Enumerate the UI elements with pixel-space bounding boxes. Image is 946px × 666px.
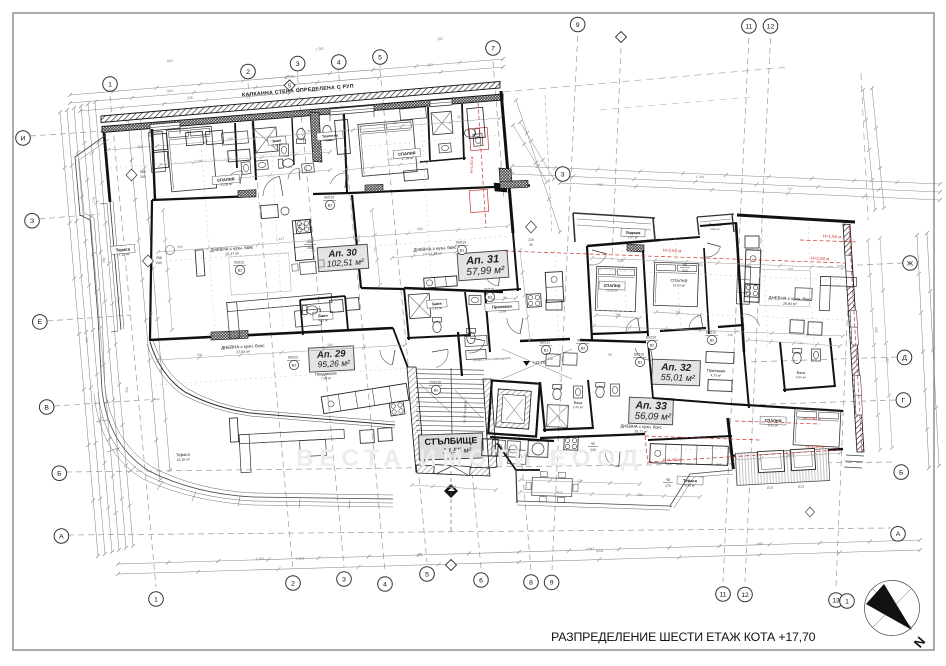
svg-text:1: 1 bbox=[108, 81, 112, 88]
svg-text:340: 340 bbox=[617, 259, 623, 263]
svg-text:148: 148 bbox=[373, 247, 377, 253]
svg-text:1: 1 bbox=[154, 596, 158, 603]
svg-text:210: 210 bbox=[682, 269, 688, 273]
svg-text:95,26 м²: 95,26 м² bbox=[317, 358, 351, 370]
svg-text:1 447: 1 447 bbox=[276, 237, 285, 242]
svg-text:1,92 м²: 1,92 м² bbox=[710, 227, 720, 231]
svg-text:360: 360 bbox=[125, 387, 129, 393]
svg-text:90/210: 90/210 bbox=[456, 241, 466, 245]
svg-text:А: А bbox=[896, 531, 901, 538]
svg-text:90: 90 bbox=[393, 121, 397, 125]
svg-text:905: 905 bbox=[874, 327, 878, 333]
svg-text:Л-П: Л-П bbox=[767, 486, 773, 490]
svg-text:4: 4 bbox=[383, 581, 387, 588]
svg-text:+17,70: +17,70 bbox=[533, 360, 547, 365]
svg-text:Г: Г bbox=[902, 397, 906, 404]
svg-text:Б: Б bbox=[899, 469, 904, 476]
svg-text:80/210: 80/210 bbox=[706, 331, 716, 335]
svg-text:1 592: 1 592 bbox=[316, 47, 325, 52]
svg-text:2: 2 bbox=[291, 580, 295, 587]
svg-text:З: З bbox=[30, 218, 34, 225]
svg-text:272: 272 bbox=[577, 479, 583, 483]
svg-text:338: 338 bbox=[187, 96, 193, 100]
svg-text:203: 203 bbox=[427, 63, 433, 67]
svg-text:В1: В1 bbox=[544, 349, 548, 353]
svg-text:В3: В3 bbox=[488, 296, 492, 300]
svg-text:11: 11 bbox=[745, 23, 752, 30]
svg-text:4,04 м²: 4,04 м² bbox=[796, 375, 806, 379]
svg-text:4: 4 bbox=[337, 59, 341, 66]
svg-text:592: 592 bbox=[102, 257, 106, 263]
svg-text:425: 425 bbox=[387, 157, 393, 161]
svg-text:Прихожая: Прихожая bbox=[707, 368, 726, 374]
svg-text:240: 240 bbox=[140, 175, 146, 179]
svg-text:385: 385 bbox=[615, 313, 621, 317]
svg-text:В2: В2 bbox=[650, 344, 654, 348]
svg-text:56,09 м²: 56,09 м² bbox=[635, 411, 672, 423]
svg-text:586: 586 bbox=[417, 553, 423, 557]
svg-text:1,98 м²: 1,98 м² bbox=[325, 138, 335, 143]
svg-text:13: 13 bbox=[832, 597, 840, 604]
svg-text:Б: Б bbox=[57, 471, 62, 478]
svg-text:Н=1,50 м: Н=1,50 м bbox=[663, 457, 681, 462]
svg-text:272: 272 bbox=[557, 491, 563, 495]
svg-text:90: 90 bbox=[503, 296, 507, 300]
svg-text:В2: В2 bbox=[238, 269, 242, 273]
svg-text:И: И bbox=[21, 135, 26, 142]
svg-text:90: 90 bbox=[357, 238, 361, 242]
svg-text:В2: В2 bbox=[710, 339, 714, 343]
svg-text:Н=2,60 м: Н=2,60 м bbox=[663, 248, 682, 254]
svg-text:680: 680 bbox=[757, 542, 763, 546]
svg-text:9: 9 bbox=[550, 580, 554, 587]
svg-text:4 847: 4 847 bbox=[586, 547, 595, 551]
svg-text:В1: В1 bbox=[638, 361, 642, 365]
svg-text:6: 6 bbox=[479, 577, 483, 584]
svg-text:90: 90 bbox=[683, 263, 687, 267]
svg-text:80/210: 80/210 bbox=[634, 353, 644, 357]
svg-text:455: 455 bbox=[885, 357, 889, 363]
svg-text:1 007: 1 007 bbox=[296, 557, 305, 561]
svg-text:27,84 м²: 27,84 м² bbox=[236, 349, 251, 354]
svg-text:586: 586 bbox=[637, 493, 643, 497]
svg-text:В2: В2 bbox=[581, 347, 585, 351]
svg-text:Н=1,50 м: Н=1,50 м bbox=[806, 444, 824, 449]
svg-text:219: 219 bbox=[528, 238, 534, 242]
svg-text:240: 240 bbox=[307, 246, 313, 250]
svg-text:90/210: 90/210 bbox=[234, 261, 244, 265]
svg-text:26,84 м²: 26,84 м² bbox=[783, 302, 798, 307]
svg-text:3,61 м²: 3,61 м² bbox=[432, 306, 442, 311]
svg-text:9: 9 bbox=[576, 22, 580, 29]
svg-text:2: 2 bbox=[246, 69, 250, 76]
svg-text:178: 178 bbox=[92, 197, 96, 203]
svg-text:780: 780 bbox=[787, 453, 793, 457]
svg-text:148: 148 bbox=[727, 333, 733, 337]
svg-text:90/210: 90/210 bbox=[288, 356, 298, 360]
svg-text:203: 203 bbox=[437, 37, 443, 41]
svg-text:Л-П: Л-П bbox=[798, 485, 804, 489]
svg-text:2,17 м²: 2,17 м² bbox=[628, 235, 638, 239]
svg-text:РАЗПРЕДЕЛЕНИЕ ШЕСТИ ЕТАЖ КОТА: РАЗПРЕДЕЛЕНИЕ ШЕСТИ ЕТАЖ КОТА +17,70 bbox=[551, 630, 816, 644]
svg-text:9,31 м²: 9,31 м² bbox=[768, 423, 778, 427]
svg-text:591: 591 bbox=[197, 353, 203, 357]
svg-text:445: 445 bbox=[307, 129, 313, 133]
svg-text:747: 747 bbox=[787, 187, 793, 191]
svg-text:Н=1,50 м: Н=1,50 м bbox=[823, 234, 842, 240]
svg-text:330: 330 bbox=[597, 183, 603, 187]
svg-text:1 592: 1 592 bbox=[285, 75, 294, 80]
svg-text:258: 258 bbox=[156, 256, 162, 260]
svg-text:90/210: 90/210 bbox=[484, 288, 494, 292]
svg-text:90: 90 bbox=[638, 329, 642, 333]
svg-text:В: В bbox=[44, 404, 49, 411]
svg-text:·: · bbox=[620, 35, 622, 41]
svg-text:ВЕСТА ИМОТИ ЕООД: ВЕСТА ИМОТИ ЕООД bbox=[296, 445, 644, 472]
svg-text:12: 12 bbox=[741, 592, 749, 599]
svg-text:Н=2,60 м: Н=2,60 м bbox=[811, 256, 830, 262]
svg-text:160: 160 bbox=[227, 137, 233, 141]
svg-text:5: 5 bbox=[378, 54, 382, 61]
svg-text:11: 11 bbox=[719, 591, 726, 598]
svg-text:482: 482 bbox=[85, 337, 89, 343]
svg-text:3: 3 bbox=[342, 576, 346, 583]
svg-text:353: 353 bbox=[697, 263, 703, 267]
svg-text:Д: Д bbox=[902, 355, 907, 362]
svg-text:4,75 м²: 4,75 м² bbox=[711, 373, 723, 377]
svg-text:744: 744 bbox=[797, 341, 803, 345]
svg-text:7: 7 bbox=[491, 45, 495, 52]
svg-text:100/210: 100/210 bbox=[429, 381, 441, 385]
svg-text:332: 332 bbox=[422, 252, 428, 256]
svg-text:2,49 м²: 2,49 м² bbox=[573, 405, 583, 409]
svg-text:В2: В2 bbox=[292, 364, 296, 368]
svg-text:160: 160 bbox=[327, 343, 333, 347]
svg-text:590: 590 bbox=[177, 245, 183, 249]
svg-text:8: 8 bbox=[529, 579, 533, 586]
svg-text:482: 482 bbox=[149, 312, 153, 318]
svg-text:148: 148 bbox=[547, 357, 553, 361]
svg-text:173: 173 bbox=[447, 484, 453, 488]
svg-text:42,16 м²: 42,16 м² bbox=[177, 457, 191, 462]
svg-text:4,02 м²: 4,02 м² bbox=[272, 143, 282, 148]
svg-text:Вх: Вх bbox=[434, 389, 438, 393]
svg-text:3: 3 bbox=[296, 61, 300, 68]
svg-text:5: 5 bbox=[425, 571, 429, 578]
svg-text:98: 98 bbox=[666, 478, 670, 482]
svg-text:А: А bbox=[59, 533, 64, 540]
svg-text:Ж: Ж bbox=[907, 260, 914, 267]
svg-text:90/210: 90/210 bbox=[577, 339, 587, 343]
svg-text:85: 85 bbox=[288, 165, 292, 169]
svg-text:1 007: 1 007 bbox=[256, 557, 265, 561]
svg-text:В1: В1 bbox=[460, 249, 464, 253]
svg-text:В2: В2 bbox=[328, 204, 332, 208]
svg-text:904: 904 bbox=[167, 59, 173, 63]
svg-text:6,36 м²: 6,36 м² bbox=[685, 483, 697, 487]
svg-text:Н=2,60 м: Н=2,60 м bbox=[803, 416, 821, 422]
svg-text:14,03 м²: 14,03 м² bbox=[673, 283, 686, 287]
svg-text:254: 254 bbox=[457, 115, 463, 119]
svg-text:3: 3 bbox=[561, 171, 565, 178]
svg-text:580: 580 bbox=[140, 170, 146, 174]
svg-text:90: 90 bbox=[529, 243, 533, 247]
svg-text:4,31 м²: 4,31 м² bbox=[318, 318, 328, 323]
svg-text:358: 358 bbox=[137, 145, 143, 149]
svg-text:Н=1,50 м: Н=1,50 м bbox=[469, 156, 475, 173]
svg-text:345: 345 bbox=[197, 159, 203, 163]
svg-text:170: 170 bbox=[665, 484, 671, 488]
svg-text:904: 904 bbox=[167, 89, 173, 93]
svg-text:6841: 6841 bbox=[596, 549, 604, 553]
svg-text:90/210: 90/210 bbox=[324, 196, 334, 200]
svg-text:7,5 м²: 7,5 м² bbox=[498, 309, 508, 314]
svg-text:775: 775 bbox=[117, 297, 121, 303]
svg-text:1: 1 bbox=[845, 598, 849, 605]
svg-text:Е: Е bbox=[38, 319, 43, 326]
svg-text:·: · bbox=[450, 563, 452, 569]
svg-text:7,04 м²: 7,04 м² bbox=[321, 376, 331, 381]
svg-text:90: 90 bbox=[608, 353, 612, 357]
svg-text:12: 12 bbox=[767, 23, 775, 30]
svg-text:80/210: 80/210 bbox=[540, 341, 550, 345]
svg-text:80/210: 80/210 bbox=[646, 336, 656, 340]
svg-text:365: 365 bbox=[417, 227, 423, 231]
svg-text:11,03 м²: 11,03 м² bbox=[606, 288, 618, 292]
svg-text:55,01 м²: 55,01 м² bbox=[661, 372, 697, 383]
svg-text:351: 351 bbox=[675, 310, 681, 314]
svg-text:1 244: 1 244 bbox=[696, 175, 705, 179]
